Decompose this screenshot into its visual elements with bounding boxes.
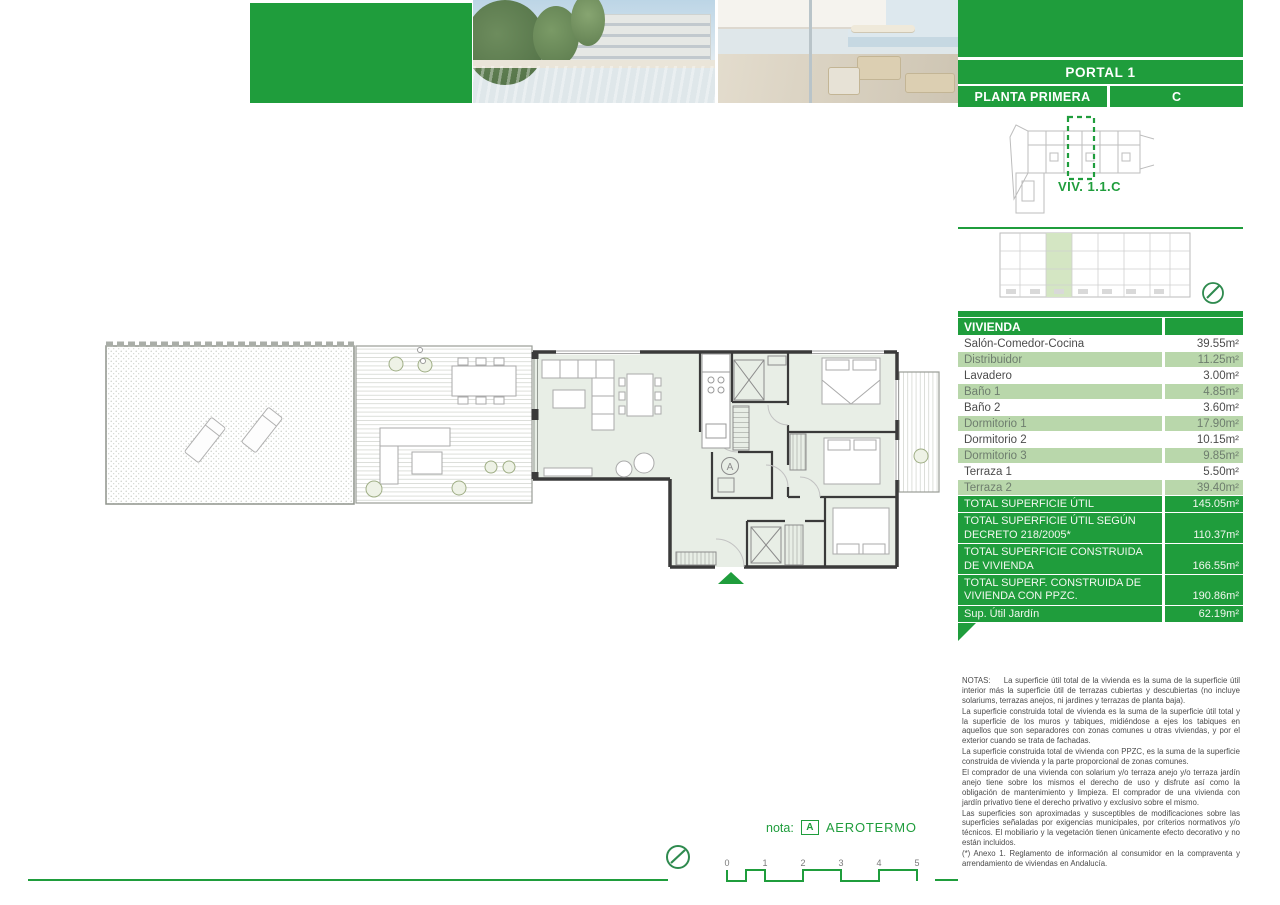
row-label: Baño 2 [958,400,1162,415]
table-row: Baño 14.85m² [958,384,1243,399]
table-row: Dormitorio 117.90m² [958,416,1243,431]
table-total-row: Sup. Útil Jardín62.19m² [958,606,1243,622]
hall-wardrobe [733,406,749,450]
row-value: 166.55m² [1165,544,1243,574]
row-label: Distribuidor [958,352,1162,367]
row-label: Terraza 1 [958,464,1162,479]
door-arcs [712,405,820,567]
entrance-closet [676,552,716,565]
table-row: Salón-Comedor-Cocina39.55m² [958,336,1243,351]
surface-table: VIVIENDASalón-Comedor-Cocina39.55m²Distr… [958,318,1243,641]
row-value: 17.90m² [1165,416,1243,431]
glass-wall [534,353,538,479]
aerotermo-circle [722,458,739,475]
photo-sea [848,37,958,47]
row-label: Baño 1 [958,384,1162,399]
scale-tick-3: 3 [838,858,843,868]
unit-letter: C [1110,86,1243,107]
photo-sofa [857,56,901,80]
apartment: A [532,350,940,584]
outdoor-sofa [380,428,450,484]
note-paragraph: (*) Anexo 1. Reglamento de información a… [962,849,1240,869]
dining-table [627,374,653,416]
scale-numbers: 012345 [724,858,919,868]
portal-title: PORTAL 1 [958,60,1243,84]
scale-bar [727,870,917,881]
table-total-row: TOTAL SUPERF. CONSTRUIDA DE VIVIENDA CON… [958,575,1243,605]
note-paragraph: La superficie construida total de vivien… [962,747,1240,767]
row-value: 3.60m² [1165,400,1243,415]
row-value: 3.00m² [1165,368,1243,383]
row-value: 62.19m² [1165,606,1243,622]
scale-tick-1: 1 [762,858,767,868]
entrance-arrow [718,572,744,584]
table-row: Dormitorio 210.15m² [958,432,1243,447]
table-tail-triangle [958,623,976,641]
planta-title: PLANTA PRIMERA [958,86,1107,107]
aerotermo-letter: A [727,462,734,473]
surface-table-body: VIVIENDASalón-Comedor-Cocina39.55m²Distr… [958,318,1243,622]
plants [366,357,515,497]
armchair [616,461,632,477]
sun-loungers [184,407,282,463]
table-total-row: TOTAL SUPERFICIE ÚTIL145.05m² [958,496,1243,512]
scale-tick-2: 2 [800,858,805,868]
row-label: TOTAL SUPERFICIE ÚTIL SEGÚN DECRETO 218/… [958,513,1162,543]
row-label: VIVIENDA [958,318,1162,335]
row-value: 110.37m² [1165,513,1243,543]
outer-walls [533,352,897,567]
living-room [542,360,661,477]
building-overview-svg [958,229,1243,311]
aerotermo-symbol-box: A [801,820,819,835]
windows [556,350,900,480]
outdoor-dining-table [452,366,516,396]
nota-label: nota: [766,821,794,835]
floor-plan-sheet: A [0,0,1280,905]
bedroom-2 [790,434,880,484]
row-label: Salón-Comedor-Cocina [958,336,1162,351]
row-value: 4.85m² [1165,384,1243,399]
site-plan-svg [958,107,1243,227]
row-value: 145.05m² [1165,496,1243,512]
bathroom-2 [751,525,803,565]
info-panel: PORTAL 1 PLANTA PRIMERA C VIV [958,0,1243,905]
brand-color-block [250,3,472,103]
terrace-1 [899,372,939,492]
building-overview [958,229,1243,311]
notes-block: NOTAS: La superficie útil total de la vi… [962,676,1240,870]
note-paragraph: La superficie construida total de vivien… [962,707,1240,747]
photo-sofa [905,73,955,93]
north-compass-icon [1203,283,1223,303]
apartment-floor [533,352,897,567]
scale-tick-5: 5 [914,858,919,868]
north-compass-icon [667,846,689,868]
kitchen [702,354,730,448]
armchair [634,453,654,473]
row-value [1165,318,1243,335]
table-row: Distribuidor11.25m² [958,352,1243,367]
row-value: 39.55m² [1165,336,1243,351]
table-header-row: VIVIENDA [958,318,1243,335]
bedroom-1 [822,358,880,404]
panel-top-block [958,0,1243,57]
scale-tick-0: 0 [724,858,729,868]
site-plan: VIV. 1.1.C [958,107,1243,227]
photo-pool-water [473,66,715,103]
table-total-row: TOTAL SUPERFICIE ÚTIL SEGÚN DECRETO 218/… [958,513,1243,543]
note-paragraph: NOTAS: La superficie útil total de la vi… [962,676,1240,706]
row-label: Lavadero [958,368,1162,383]
row-label: Dormitorio 2 [958,432,1162,447]
row-label: Sup. Útil Jardín [958,606,1162,622]
row-value: 190.86m² [1165,575,1243,605]
photo-glass-panel [809,0,812,103]
table-row: Terraza 239.40m² [958,480,1243,495]
row-value: 10.15m² [1165,432,1243,447]
deck-terrace [356,346,532,503]
tv-bench [544,468,592,476]
table-row: Dormitorio 39.85m² [958,448,1243,463]
row-value: 39.40m² [1165,480,1243,495]
note-paragraph: El comprador de una vivienda con solariu… [962,768,1240,808]
table-row: Terraza 15.50m² [958,464,1243,479]
coffee-table [553,390,585,408]
note-paragraph: Las superficies son aproximadas y suscep… [962,809,1240,849]
photo-sofa [828,67,860,95]
row-label: TOTAL SUPERFICIE ÚTIL [958,496,1162,512]
photo-terrace-interior [718,0,958,103]
aerotermo-note: nota: A AEROTERMO [766,820,917,835]
row-label: TOTAL SUPERF. CONSTRUIDA DE VIVIENDA CON… [958,575,1162,605]
photo-umbrella [851,25,915,32]
row-label: Dormitorio 3 [958,448,1162,463]
table-row: Lavadero3.00m² [958,368,1243,383]
overview-unit-highlight [1046,233,1072,297]
table-total-row: TOTAL SUPERFICIE CONSTRUIDA DE VIVIENDA1… [958,544,1243,574]
bathroom-1 [734,356,786,400]
row-label: Terraza 2 [958,480,1162,495]
row-label: TOTAL SUPERFICIE CONSTRUIDA DE VIVIENDA [958,544,1162,574]
row-value: 5.50m² [1165,464,1243,479]
unit-highlight-dashed [1068,117,1094,179]
outdoor-chairs [458,358,504,404]
interior-walls [700,352,897,567]
aerotermo-label: AEROTERMO [826,820,917,835]
table-top-bar [958,311,1243,317]
row-value: 9.85m² [1165,448,1243,463]
unit-label: VIV. 1.1.C [1058,179,1121,194]
photo-pool-exterior [473,0,715,103]
garden-area [106,344,354,504]
table-row: Baño 23.60m² [958,400,1243,415]
laundry-room: A [718,458,739,493]
row-label: Dormitorio 1 [958,416,1162,431]
row-value: 11.25m² [1165,352,1243,367]
bedroom-3 [833,508,889,554]
scale-tick-4: 4 [876,858,881,868]
